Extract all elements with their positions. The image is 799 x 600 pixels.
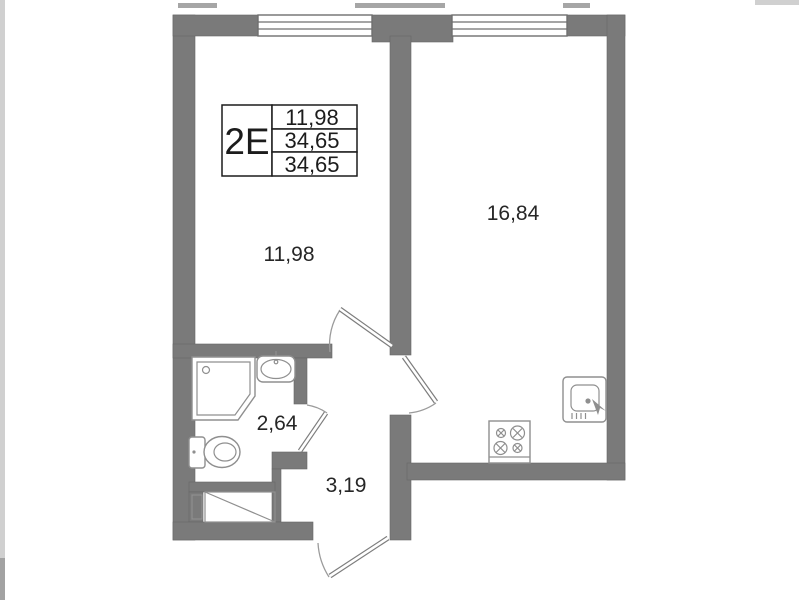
- washbasin-icon: [257, 351, 295, 382]
- living-room-area-label: 11,98: [264, 243, 315, 266]
- page-edge-left: [0, 0, 5, 600]
- wall-bathroom-bottom: [189, 482, 275, 492]
- wall-top-left: [173, 15, 258, 36]
- door-kitchen: [404, 357, 436, 413]
- legend-row1-value: 11,98: [285, 105, 338, 130]
- unit-legend: 2Е 11,98 34,65 34,65: [222, 105, 357, 177]
- door-entrance: [318, 538, 388, 577]
- wardrobe-diagonal-icon: [192, 492, 275, 522]
- hallway-area-label: 3,19: [326, 474, 367, 497]
- legend-row3-value: 34,65: [284, 152, 339, 177]
- wall-middle-upper: [390, 36, 411, 355]
- wall-shaft-stub: [189, 492, 203, 522]
- shower-tray-icon: [192, 357, 255, 420]
- page-edge-bottom-left: [0, 558, 5, 600]
- door-living: [330, 309, 392, 352]
- wall-kitchen-bottom: [407, 463, 625, 480]
- kitchen-sink-icon: [563, 377, 606, 422]
- top-tick-marks: [178, 3, 590, 8]
- wall-top-pier: [372, 15, 453, 42]
- door-bathroom: [300, 405, 327, 451]
- wall-right: [607, 15, 625, 480]
- window-kitchen: [452, 15, 567, 36]
- legend-row2-value: 34,65: [284, 128, 339, 153]
- wall-bathroom-right-upper: [294, 358, 307, 404]
- wall-outer-bottom: [173, 522, 313, 540]
- unit-type-label: 2Е: [224, 121, 269, 162]
- wall-bathroom-top: [173, 344, 332, 358]
- window-living: [258, 15, 372, 36]
- wall-bathroom-right-thin: [272, 469, 281, 522]
- page-edge-top-right: [755, 0, 799, 5]
- toilet-icon: [189, 437, 240, 469]
- kitchen-area-label: 16,84: [487, 202, 540, 225]
- walls: [173, 15, 625, 540]
- wall-bathroom-right-lower: [272, 452, 307, 469]
- floor-plan: 2Е 11,98 34,65 34,65 11,98 16,84 2,64 3,…: [0, 0, 799, 600]
- stove-4-burner-icon: [489, 421, 530, 463]
- bathroom-area-label: 2,64: [257, 412, 298, 435]
